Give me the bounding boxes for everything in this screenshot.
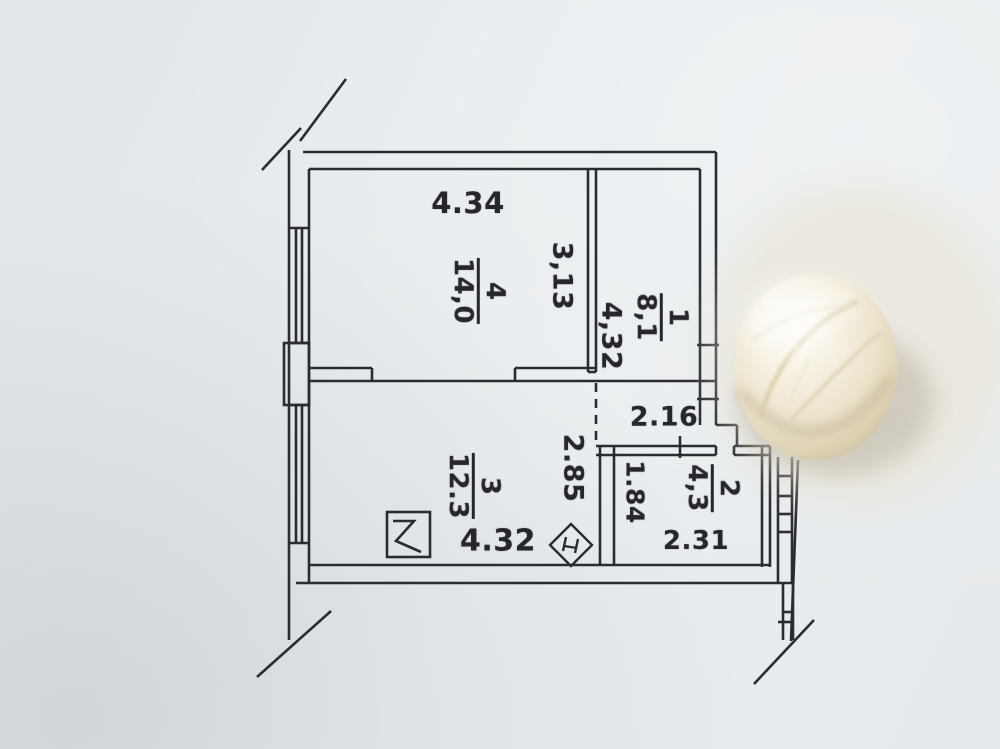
room-1-area: 8,1 (631, 293, 659, 341)
bottom-wall (296, 565, 793, 640)
room4-room3-wall (309, 368, 716, 381)
dimension-room4-depth: 3,13 (547, 242, 578, 311)
dimension-room3-depth: 2.85 (558, 434, 589, 503)
room-3-label: 3 12.3 (443, 453, 503, 519)
dimension-room4-width: 4.34 (431, 186, 505, 220)
top-exterior-wall (303, 152, 716, 169)
room-3-number: 3 (472, 453, 503, 519)
ventilation-shaft-icon (387, 512, 430, 557)
dimension-hall-width: 2.16 (630, 402, 699, 433)
room-1-label: 1 8,1 (631, 293, 691, 341)
floor-plan-photo: 4.34 4 14,0 3,13 4,32 1 8,1 2.16 2.85 3 … (0, 0, 1000, 749)
floor-plan-drawing (0, 0, 1000, 749)
dome-highlight (754, 276, 858, 324)
dimension-room3-width: 4.32 (460, 524, 536, 559)
room-2-number: 2 (711, 464, 742, 512)
dimension-room2-width: 2.31 (663, 526, 729, 556)
room-4-area: 14,0 (448, 258, 476, 324)
room-4-label: 4 14,0 (448, 258, 508, 324)
room-3-area: 12.3 (443, 453, 471, 519)
dimension-room2-depth: 1.84 (621, 460, 650, 524)
window-symbol (289, 228, 309, 343)
room-2-label: 2 4,3 (682, 464, 742, 512)
diamond-marker-icon (550, 524, 592, 566)
room-4-number: 4 (477, 258, 508, 324)
room-2-area: 4,3 (682, 464, 710, 512)
dome-object (713, 187, 1000, 503)
window-symbol (289, 405, 309, 543)
dimension-hall-depth: 4,32 (596, 302, 627, 371)
left-exterior-wall (284, 150, 309, 640)
room-1-number: 1 (660, 293, 691, 341)
